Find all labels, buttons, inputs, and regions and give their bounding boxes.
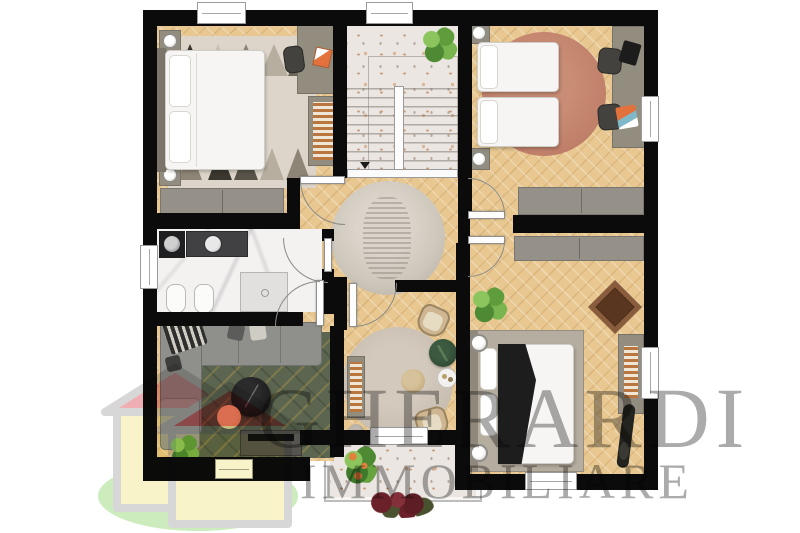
bedside-lamp: [471, 25, 487, 41]
door-arc-bedroom1: [300, 180, 345, 225]
bidet: [194, 284, 214, 314]
washing-machine: [159, 231, 185, 258]
window-left-bathroom: [140, 245, 158, 289]
hall-round-rug: [331, 181, 445, 295]
wall-hall-nook-divider: [395, 280, 458, 292]
vanity-sink: [204, 235, 222, 253]
door-arc-curve: [468, 240, 505, 277]
bedside-lamp: [162, 33, 178, 49]
window-pane: [202, 13, 242, 14]
wall-corridor-stub: [334, 277, 347, 330]
window-pane: [371, 13, 409, 14]
door-arc-curve: [353, 283, 397, 327]
door-arc-curve: [468, 178, 505, 215]
door-arc-curve: [275, 281, 320, 326]
wardrobe: [514, 236, 644, 261]
pillow: [169, 55, 191, 107]
wardrobe: [160, 188, 284, 216]
floor-plan: GHERARDI IMMOBILIARE: [0, 0, 800, 533]
pillow: [480, 45, 498, 89]
door-arc-bathroom: [283, 238, 328, 283]
double-bed: [165, 50, 265, 170]
wall-twin-bottom: [513, 215, 644, 233]
single-bed: [477, 42, 559, 92]
duvet-seam: [196, 53, 197, 167]
door-arc-living: [275, 281, 320, 326]
pillow: [169, 111, 191, 163]
door-arc-nook: [353, 283, 397, 327]
window-top-stairs: [366, 2, 413, 24]
washer-drum: [164, 236, 180, 252]
chair-cushion: [421, 310, 444, 333]
plant-bedroom3: [470, 286, 508, 324]
door-arc-curve: [283, 238, 328, 283]
wardrobe-door-line: [222, 190, 223, 214]
wall-hall-stub: [287, 178, 300, 229]
shower-drain: [261, 289, 269, 297]
toilet: [166, 284, 186, 314]
wardrobe: [518, 187, 644, 215]
stair-rail: [394, 86, 404, 172]
stair-down-arrow: [360, 162, 370, 169]
bedside-lamp: [471, 151, 487, 167]
leaf-streak: [434, 344, 452, 362]
door-arc-curve: [300, 180, 345, 225]
wall-bedroom1-stairs: [333, 10, 347, 178]
pillow: [480, 100, 498, 144]
wardrobe-door-line: [579, 238, 580, 259]
side-table-green: [429, 339, 457, 367]
door-arc-bedroom3: [468, 240, 505, 277]
wall-bedroom1-bottom: [143, 213, 287, 229]
window-pane: [149, 249, 150, 284]
stair-glass-partition: [347, 169, 458, 178]
bedside-lamp: [470, 334, 488, 352]
plant-stairs: [420, 26, 458, 64]
desk-chair: [282, 45, 306, 75]
rug-texture: [363, 197, 411, 279]
shelf-contents: [313, 102, 333, 160]
wardrobe-door-line: [581, 189, 582, 213]
single-bed: [477, 97, 559, 147]
window-top-bedroom1: [197, 2, 246, 24]
watermark-brand-name: GHERARDI: [258, 375, 750, 461]
door-arc-twin: [468, 178, 505, 215]
window-pane: [650, 101, 651, 138]
window-right-twin: [641, 96, 659, 142]
watermark-brand-subtitle: IMMOBILIARE: [300, 456, 694, 506]
desk-papers: [615, 104, 639, 129]
